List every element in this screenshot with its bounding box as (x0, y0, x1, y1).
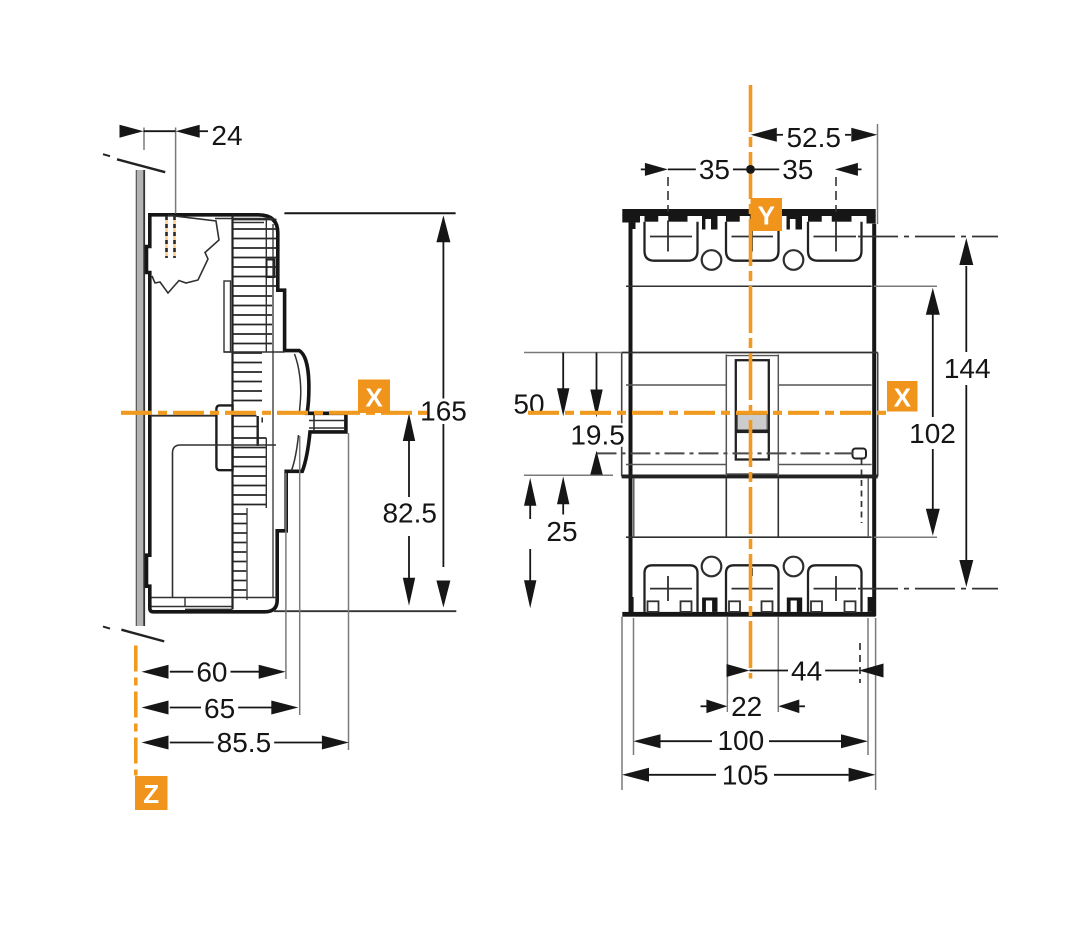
svg-text:165: 165 (420, 396, 467, 427)
svg-text:65: 65 (204, 693, 235, 724)
svg-text:102: 102 (909, 418, 956, 449)
svg-text:52.5: 52.5 (786, 122, 841, 153)
svg-text:35: 35 (699, 154, 730, 185)
svg-text:19.5: 19.5 (570, 420, 625, 451)
svg-text:44: 44 (791, 656, 822, 687)
svg-text:60: 60 (196, 657, 227, 688)
svg-text:100: 100 (717, 725, 764, 756)
svg-text:Y: Y (758, 201, 775, 231)
svg-text:35: 35 (782, 154, 813, 185)
svg-text:X: X (365, 382, 383, 412)
svg-text:82.5: 82.5 (382, 498, 437, 529)
svg-text:22: 22 (731, 691, 762, 722)
svg-text:24: 24 (211, 120, 242, 151)
svg-text:85.5: 85.5 (217, 727, 272, 758)
svg-text:X: X (894, 382, 912, 412)
svg-text:Z: Z (143, 779, 159, 809)
svg-text:144: 144 (944, 353, 991, 384)
svg-text:105: 105 (722, 759, 769, 790)
svg-text:25: 25 (546, 516, 577, 547)
